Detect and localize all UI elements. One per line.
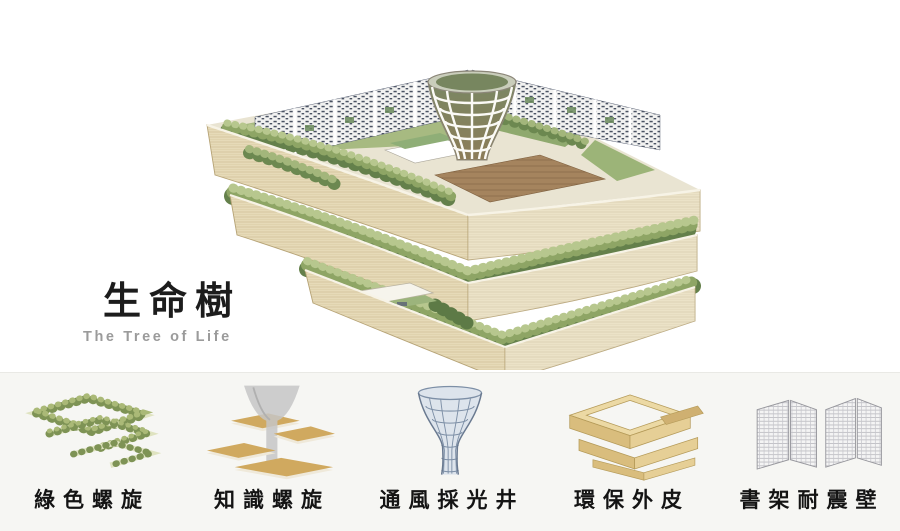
bookshelf-wall-icon [725,380,895,482]
page-title: 生命樹 [83,282,343,324]
features-strip: 綠色螺旋 知識螺旋 [0,372,900,531]
knowledge-spiral-icon [190,380,350,482]
feature-bookshelf-wall: 書架耐震壁 [720,373,900,531]
light-well-funnel-icon [370,380,530,482]
feature-green-spiral: 綠色螺旋 [0,373,180,531]
feature-art [370,380,530,482]
green-spiral-icon [10,380,170,482]
feature-art [725,380,895,482]
feature-label-green-spiral: 綠色螺旋 [30,484,150,514]
feature-label-knowledge-spiral: 知識螺旋 [210,484,330,514]
feature-label-eco-skin: 環保外皮 [570,484,690,514]
feature-label-light-well: 通風採光井 [376,484,525,514]
eco-skin-icon [545,380,715,482]
page-subtitle: The Tree of Life [83,329,343,345]
feature-art [545,380,715,482]
feature-label-bookshelf-wall: 書架耐震壁 [736,484,885,514]
feature-eco-skin: 環保外皮 [540,373,720,531]
title-block: 生命樹 The Tree of Life [83,282,343,345]
feature-light-well: 通風採光井 [360,373,540,531]
feature-art [10,380,170,482]
feature-art [190,380,350,482]
feature-knowledge-spiral: 知識螺旋 [180,373,360,531]
